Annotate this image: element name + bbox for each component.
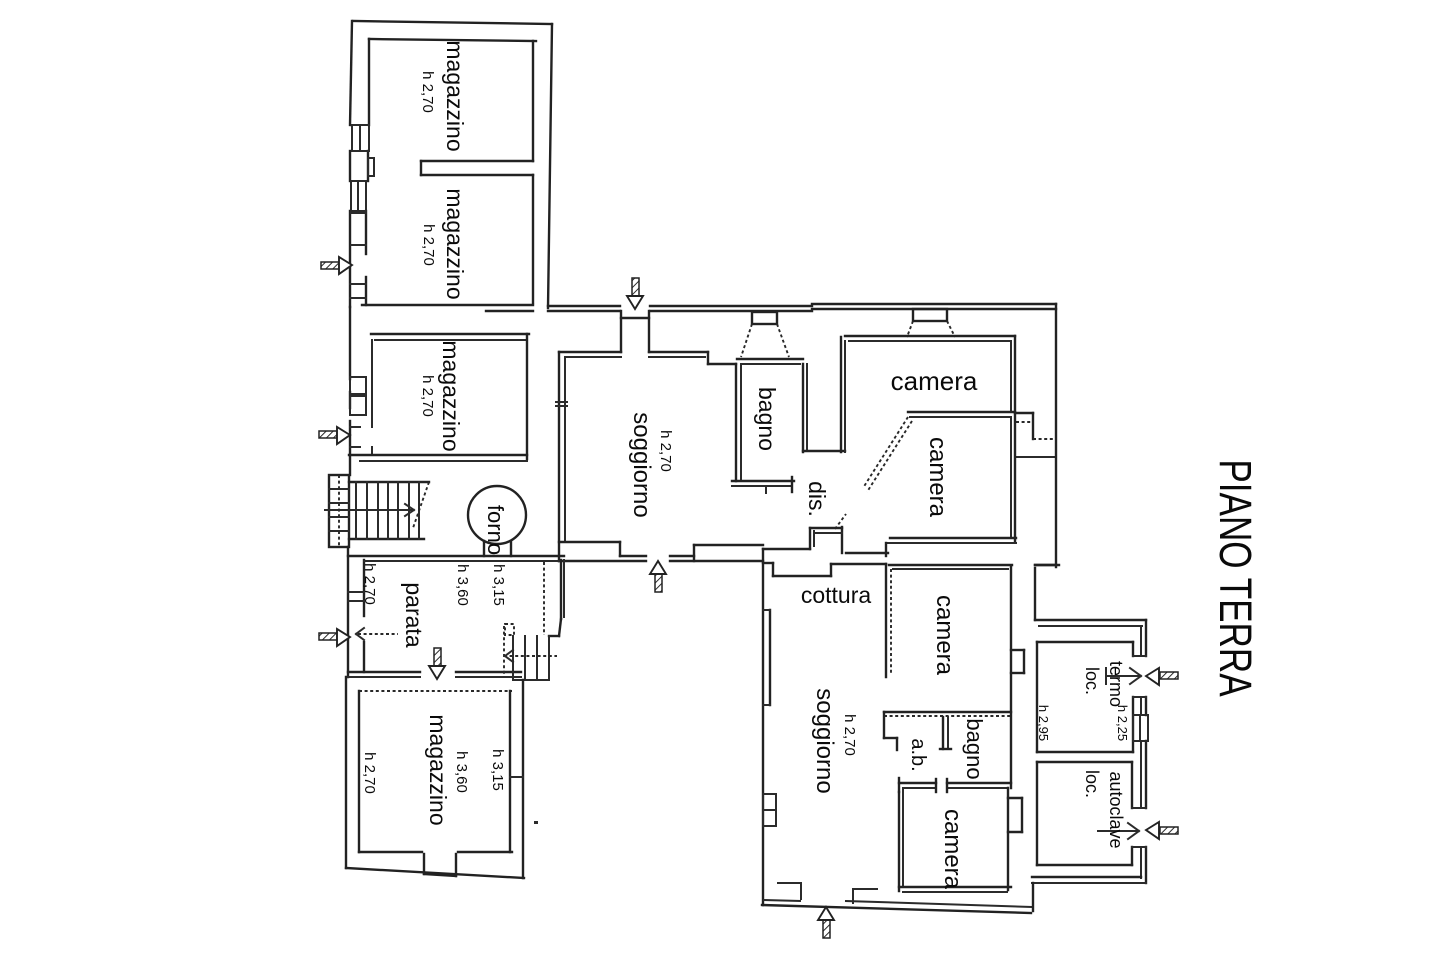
svg-text:soggiorno: soggiorno xyxy=(628,412,655,517)
svg-text:h 2,70: h 2,70 xyxy=(841,714,858,756)
svg-text:h 2,70: h 2,70 xyxy=(657,430,674,472)
svg-text:h 2,70: h 2,70 xyxy=(419,71,436,113)
svg-text:magazzino: magazzino xyxy=(438,340,464,451)
svg-text:h 2,70: h 2,70 xyxy=(419,375,436,417)
svg-text:h 2,70: h 2,70 xyxy=(361,752,378,794)
svg-text:autoclave: autoclave xyxy=(1106,771,1126,848)
svg-text:h 3,60: h 3,60 xyxy=(453,751,470,793)
svg-text:magazzino: magazzino xyxy=(425,714,451,825)
svg-text:h 2,70: h 2,70 xyxy=(361,563,378,605)
svg-text:cottura: cottura xyxy=(801,582,872,608)
svg-text:loc.: loc. xyxy=(1082,667,1102,695)
svg-text:bagno: bagno xyxy=(754,387,780,451)
svg-text:magazzino: magazzino xyxy=(442,40,468,151)
svg-text:dis.: dis. xyxy=(804,481,830,517)
svg-text:h 2,70: h 2,70 xyxy=(420,224,437,266)
svg-text:bagno: bagno xyxy=(962,718,987,779)
svg-text:h 3,15: h 3,15 xyxy=(490,564,507,606)
svg-text:forno: forno xyxy=(483,505,508,555)
svg-text:camera: camera xyxy=(939,809,966,890)
svg-text:h 2,25: h 2,25 xyxy=(1115,705,1130,741)
svg-text:h 2,95: h 2,95 xyxy=(1036,705,1051,741)
svg-text:h 3,15: h 3,15 xyxy=(489,749,506,791)
svg-text:PIANO TERRA: PIANO TERRA xyxy=(1210,459,1261,696)
svg-text:camera: camera xyxy=(891,366,978,396)
svg-text:a.b.: a.b. xyxy=(907,738,929,771)
svg-text:magazzino: magazzino xyxy=(442,188,468,299)
svg-text:camera: camera xyxy=(924,437,951,518)
svg-text:parata: parata xyxy=(401,582,427,647)
svg-text:termo: termo xyxy=(1106,661,1126,707)
svg-text:soggiorno: soggiorno xyxy=(811,688,838,793)
svg-text:h 3,60: h 3,60 xyxy=(454,564,471,606)
svg-text:camera: camera xyxy=(931,595,958,676)
svg-text:loc.: loc. xyxy=(1082,770,1102,798)
